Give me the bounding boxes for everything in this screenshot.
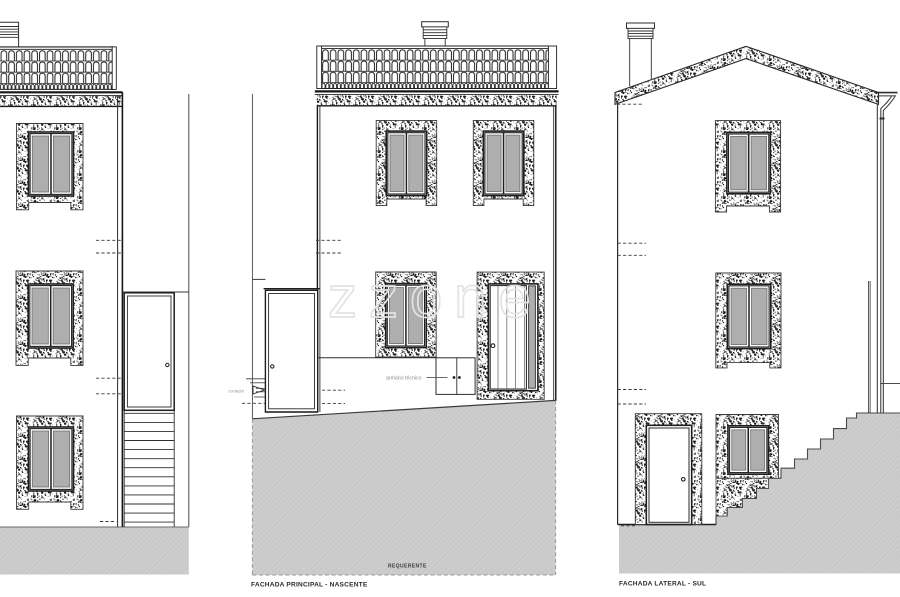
svg-text:FACHADA PRINCIPAL - NASCENTE: FACHADA PRINCIPAL - NASCENTE: [251, 582, 368, 589]
svg-text:REQUERENTE: REQUERENTE: [388, 564, 427, 570]
svg-text:armário técnico: armário técnico: [386, 376, 422, 382]
svg-text:FACHADA LATERAL - SUL: FACHADA LATERAL - SUL: [619, 581, 706, 588]
svg-text:contador: contador: [228, 389, 245, 394]
svg-text:zzone: zzone: [328, 265, 543, 330]
